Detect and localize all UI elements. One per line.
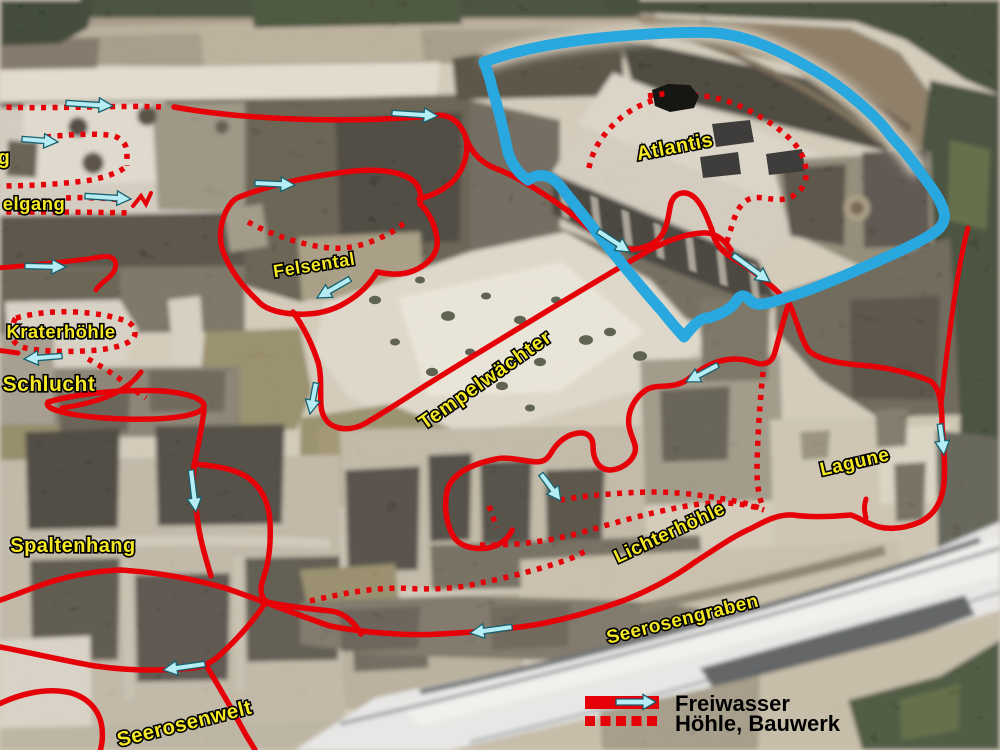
svg-text:Spaltenhang: Spaltenhang — [10, 535, 136, 557]
svg-text:Kraterhöhle: Kraterhöhle — [6, 321, 115, 342]
svg-text:g: g — [0, 147, 10, 169]
svg-text:Höhle, Bauwerk: Höhle, Bauwerk — [675, 711, 841, 736]
svg-text:elgang: elgang — [3, 193, 66, 214]
svg-text:Schlucht: Schlucht — [3, 373, 96, 396]
